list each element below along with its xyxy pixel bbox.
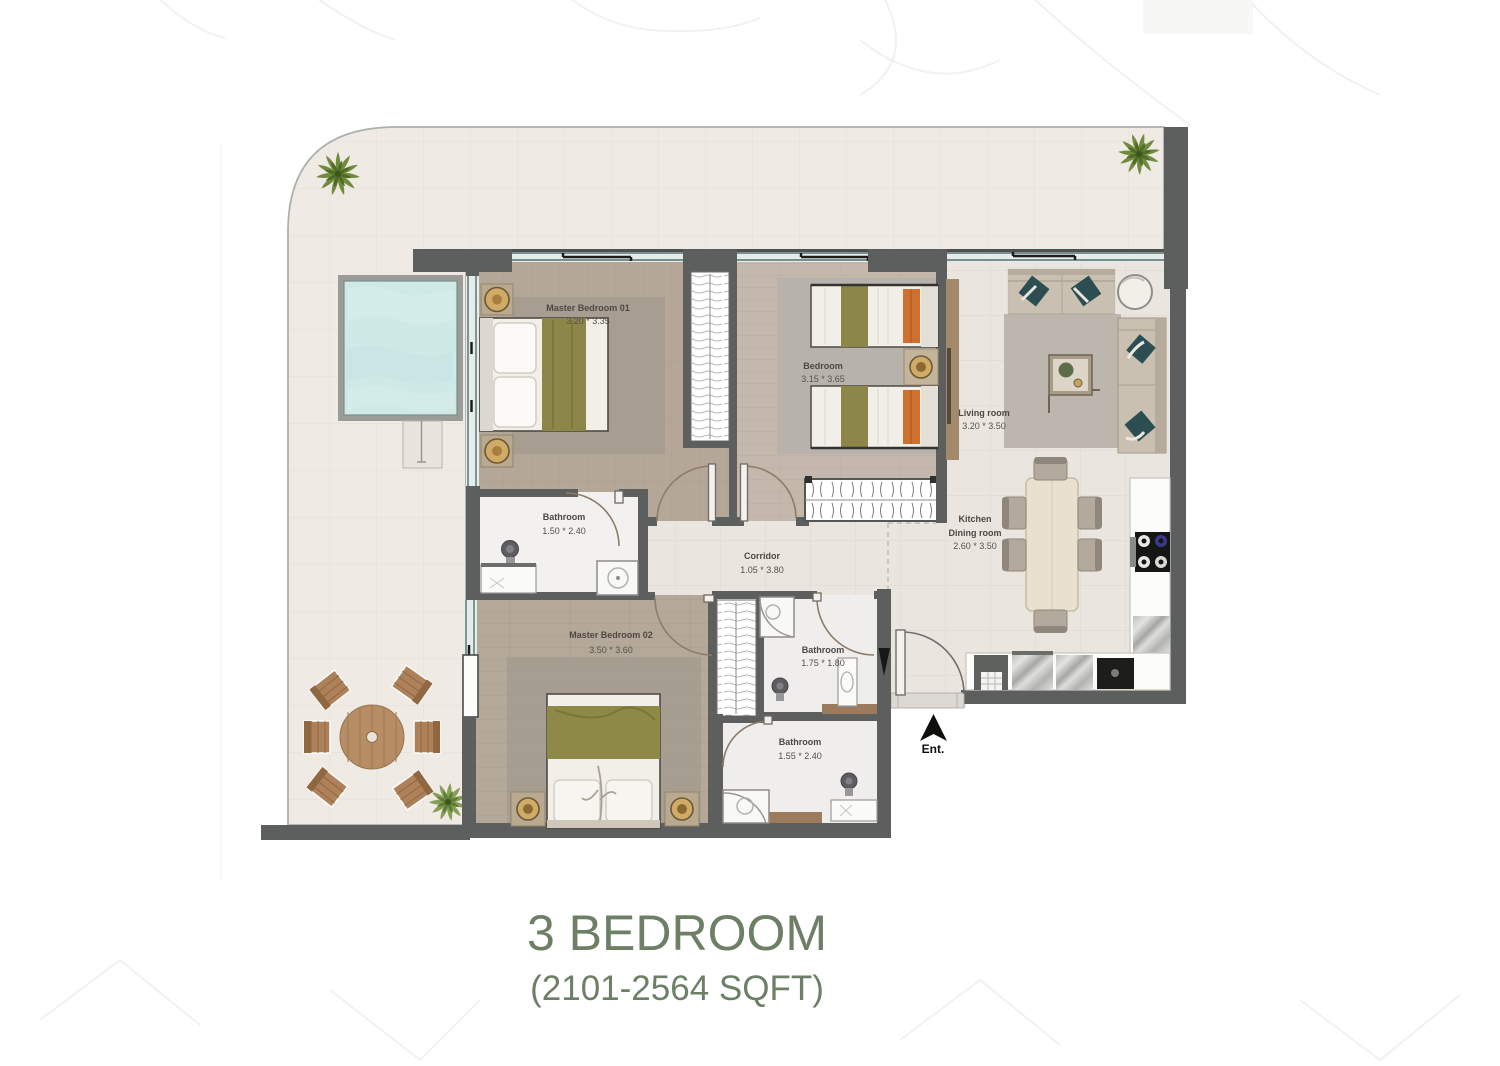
svg-text:Kitchen: Kitchen bbox=[958, 514, 991, 524]
svg-text:Ent.: Ent. bbox=[922, 742, 945, 756]
svg-text:3.20 * 3.50: 3.20 * 3.50 bbox=[962, 421, 1006, 431]
svg-text:1.50 * 2.40: 1.50 * 2.40 bbox=[542, 526, 586, 536]
svg-text:Bathroom: Bathroom bbox=[543, 512, 586, 522]
svg-text:Master Bedroom 02: Master Bedroom 02 bbox=[569, 630, 653, 640]
svg-text:Bathroom: Bathroom bbox=[802, 645, 845, 655]
svg-text:3.50 * 3.60: 3.50 * 3.60 bbox=[589, 645, 633, 655]
svg-text:1.55 * 2.40: 1.55 * 2.40 bbox=[778, 751, 822, 761]
svg-text:3.15 * 3.65: 3.15 * 3.65 bbox=[801, 374, 845, 384]
svg-text:2.60 * 3.50: 2.60 * 3.50 bbox=[953, 541, 997, 551]
svg-text:3 BEDROOM: 3 BEDROOM bbox=[527, 905, 827, 961]
svg-text:Living room: Living room bbox=[958, 408, 1010, 418]
svg-text:1.75 * 1.80: 1.75 * 1.80 bbox=[801, 658, 845, 668]
svg-text:Master Bedroom 01: Master Bedroom 01 bbox=[546, 303, 630, 313]
svg-text:Dining room: Dining room bbox=[949, 528, 1002, 538]
svg-text:(2101-2564 SQFT): (2101-2564 SQFT) bbox=[530, 969, 824, 1008]
svg-text:Bathroom: Bathroom bbox=[779, 737, 822, 747]
svg-text:Bedroom: Bedroom bbox=[803, 361, 843, 371]
svg-text:1.05 * 3.80: 1.05 * 3.80 bbox=[740, 565, 784, 575]
svg-text:Corridor: Corridor bbox=[744, 551, 780, 561]
svg-text:3.20 * 3.35: 3.20 * 3.35 bbox=[566, 316, 610, 326]
